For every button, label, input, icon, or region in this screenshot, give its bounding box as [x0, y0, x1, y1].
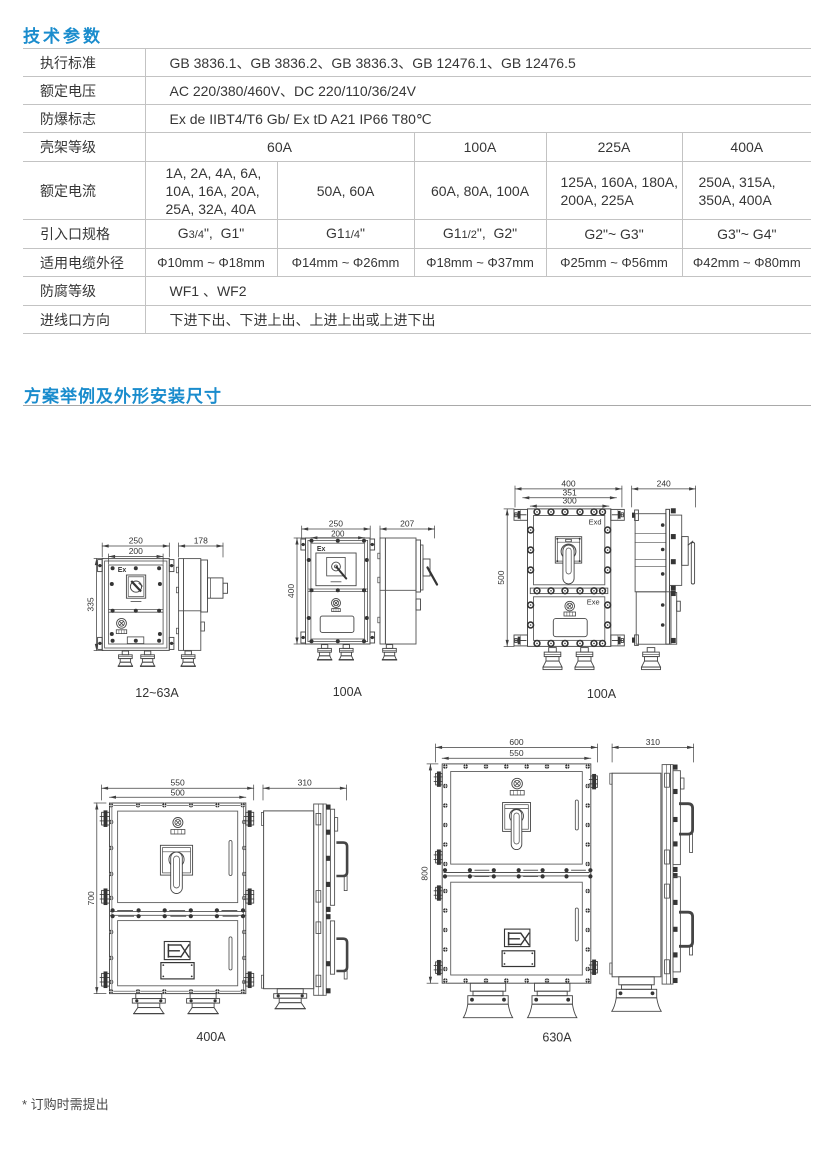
svg-text:Exe: Exe — [587, 597, 600, 606]
svg-text:300: 300 — [563, 496, 577, 506]
svg-text:200: 200 — [129, 546, 143, 556]
svg-text:Exd: Exd — [589, 518, 602, 527]
svg-text:400: 400 — [286, 584, 296, 598]
svg-text:500: 500 — [496, 570, 506, 584]
svg-text:310: 310 — [298, 778, 312, 788]
svg-text:335: 335 — [85, 597, 95, 611]
svg-text:12~63A: 12~63A — [135, 686, 179, 700]
svg-text:630A: 630A — [542, 1031, 572, 1045]
svg-text:550: 550 — [509, 748, 523, 758]
svg-text:500: 500 — [171, 787, 185, 797]
svg-text:100A: 100A — [333, 685, 363, 699]
svg-text:550: 550 — [171, 778, 185, 788]
svg-text:200: 200 — [331, 530, 345, 539]
svg-text:250: 250 — [329, 519, 343, 529]
svg-text:310: 310 — [646, 737, 660, 747]
svg-text:700: 700 — [86, 891, 96, 905]
svg-text:207: 207 — [400, 519, 414, 529]
svg-text:800: 800 — [419, 866, 429, 880]
svg-text:250: 250 — [129, 536, 143, 546]
svg-text:600: 600 — [509, 737, 523, 747]
svg-text:240: 240 — [657, 478, 671, 488]
svg-text:Ex: Ex — [317, 546, 326, 553]
svg-text:400A: 400A — [196, 1030, 226, 1044]
svg-text:178: 178 — [194, 536, 208, 546]
svg-text:100A: 100A — [587, 687, 617, 701]
svg-text:Ex: Ex — [118, 567, 127, 574]
